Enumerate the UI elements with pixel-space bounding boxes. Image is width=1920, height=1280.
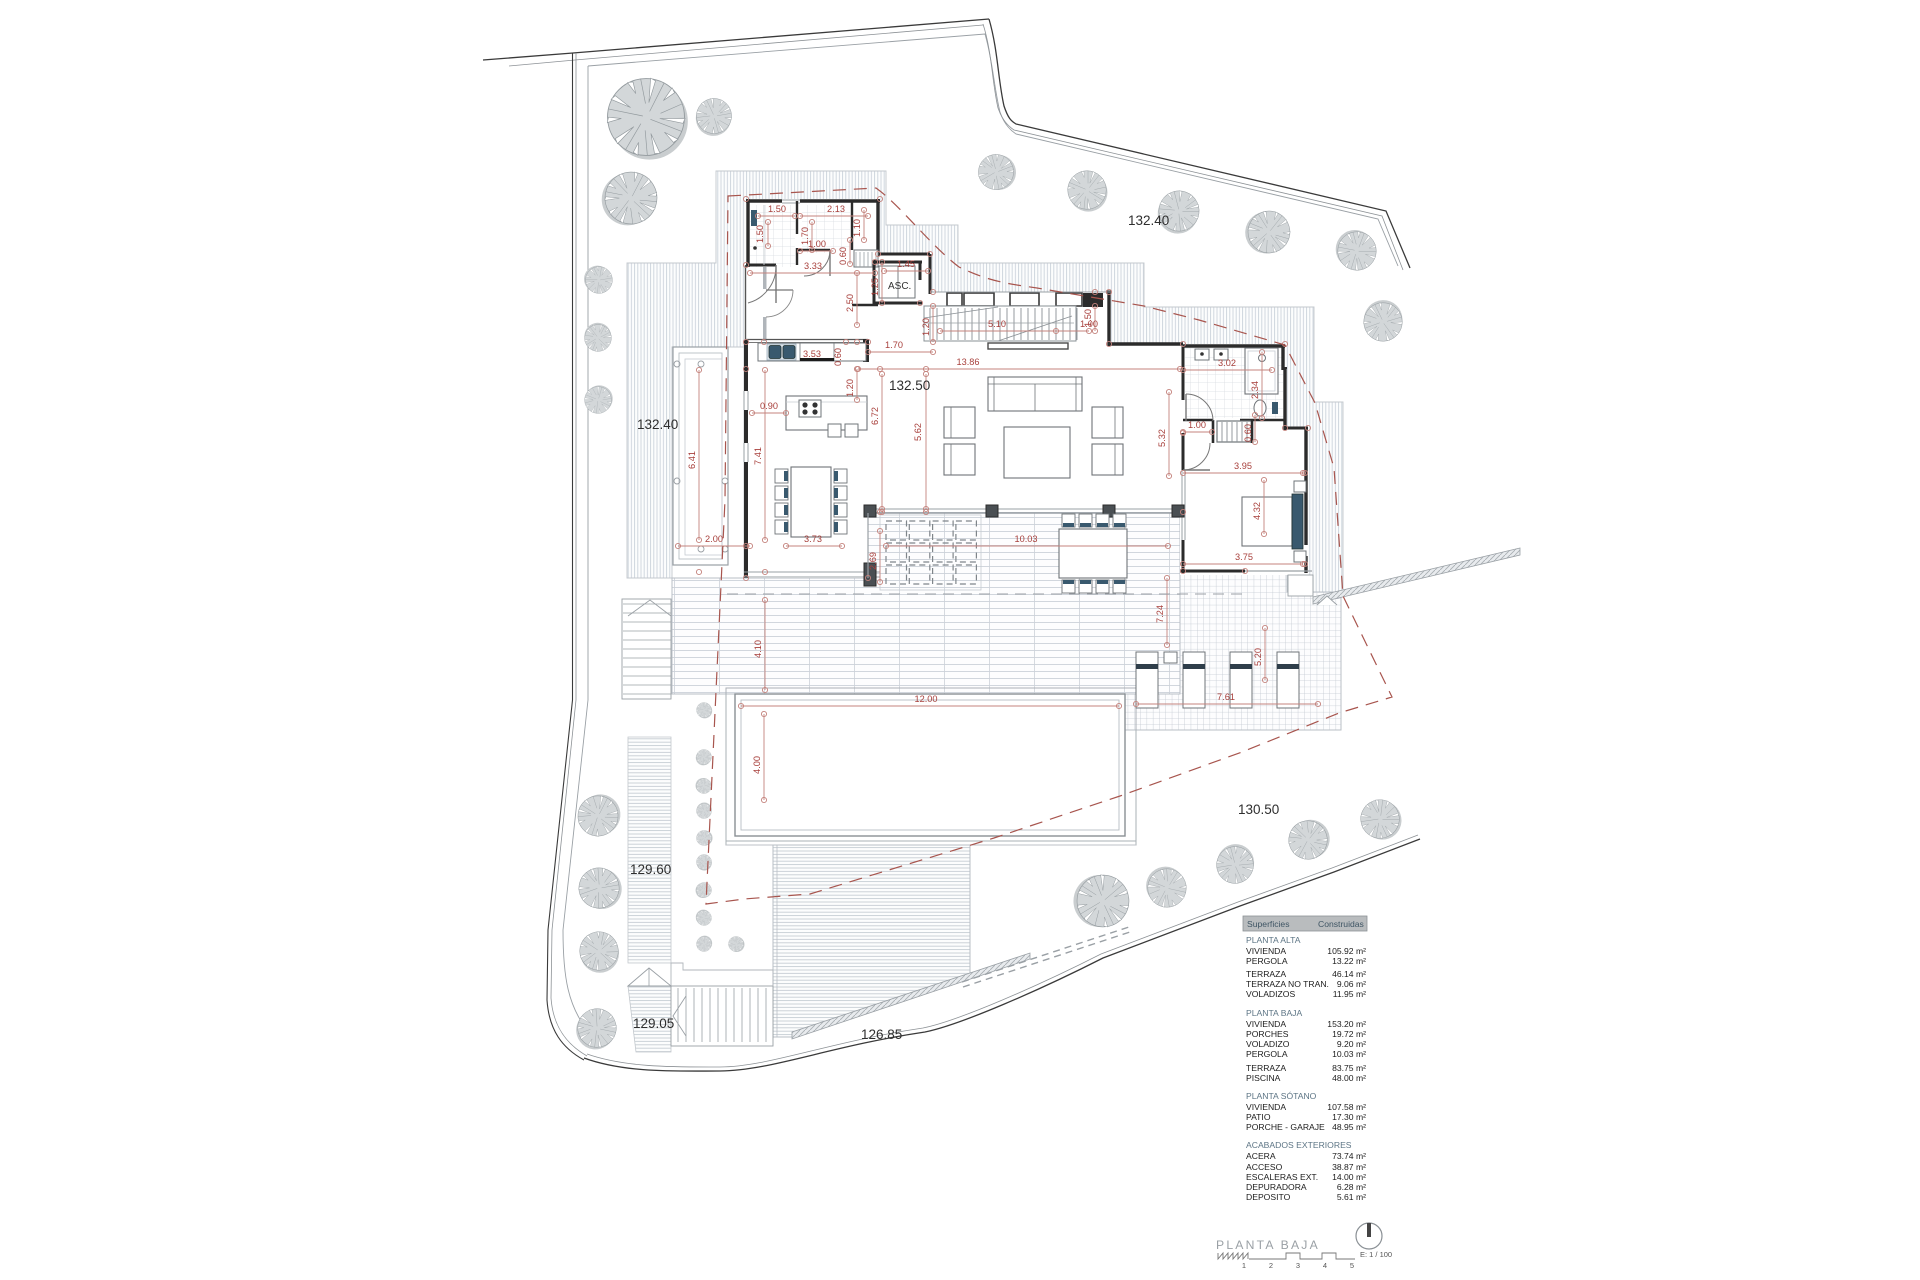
- svg-text:PERGOLA: PERGOLA: [1246, 956, 1288, 966]
- svg-text:1.25: 1.25: [870, 278, 880, 296]
- svg-text:0.60: 0.60: [838, 247, 848, 265]
- svg-text:ACCESO: ACCESO: [1246, 1162, 1283, 1172]
- svg-text:PATIO: PATIO: [1246, 1112, 1271, 1122]
- svg-text:132.50: 132.50: [889, 378, 930, 393]
- svg-text:3: 3: [1296, 1261, 1300, 1270]
- svg-text:1.50: 1.50: [768, 204, 786, 214]
- svg-text:132.40: 132.40: [1128, 213, 1169, 228]
- svg-text:2.13: 2.13: [827, 204, 845, 214]
- svg-text:3.75: 3.75: [1235, 552, 1253, 562]
- svg-text:2.50: 2.50: [845, 294, 855, 312]
- svg-text:PORCHE - GARAJE: PORCHE - GARAJE: [1246, 1122, 1325, 1132]
- svg-text:PERGOLA: PERGOLA: [1246, 1049, 1288, 1059]
- svg-text:19.72 m²: 19.72 m²: [1332, 1029, 1366, 1039]
- svg-text:4.00: 4.00: [752, 756, 762, 774]
- svg-text:7.41: 7.41: [753, 447, 763, 465]
- svg-text:11.95 m²: 11.95 m²: [1333, 989, 1366, 999]
- svg-text:129.05: 129.05: [633, 1016, 674, 1031]
- svg-text:6.28 m²: 6.28 m²: [1337, 1182, 1366, 1192]
- svg-text:TERRAZA: TERRAZA: [1246, 969, 1286, 979]
- svg-text:2.34: 2.34: [1250, 381, 1260, 399]
- svg-text:1.20: 1.20: [921, 318, 931, 336]
- svg-text:TERRAZA: TERRAZA: [1246, 1063, 1286, 1073]
- svg-text:48.00 m²: 48.00 m²: [1332, 1073, 1366, 1083]
- svg-text:VIVIENDA: VIVIENDA: [1246, 1102, 1286, 1112]
- svg-text:13.22 m²: 13.22 m²: [1332, 956, 1366, 966]
- svg-text:0.90: 0.90: [760, 401, 778, 411]
- svg-text:5.62: 5.62: [913, 423, 923, 441]
- svg-text:PLANTA BAJA: PLANTA BAJA: [1216, 1238, 1320, 1252]
- svg-text:DEPURADORA: DEPURADORA: [1246, 1182, 1307, 1192]
- svg-text:E: 1 / 100: E: 1 / 100: [1360, 1250, 1392, 1259]
- svg-text:0.60: 0.60: [1243, 424, 1253, 442]
- svg-text:6.41: 6.41: [687, 451, 697, 469]
- svg-text:2.00: 2.00: [705, 534, 723, 544]
- svg-text:13.86: 13.86: [957, 357, 980, 367]
- svg-text:PLANTA ALTA: PLANTA ALTA: [1246, 935, 1301, 945]
- svg-text:2.69: 2.69: [868, 552, 878, 570]
- svg-text:1.20: 1.20: [845, 379, 855, 397]
- svg-text:1.50: 1.50: [1083, 309, 1093, 327]
- svg-text:ASC.: ASC.: [888, 281, 911, 292]
- svg-text:0.60: 0.60: [833, 348, 843, 366]
- svg-text:3.33: 3.33: [804, 261, 822, 271]
- svg-text:3.53: 3.53: [803, 349, 821, 359]
- svg-text:4.10: 4.10: [753, 640, 763, 658]
- svg-text:PLANTA SÓTANO: PLANTA SÓTANO: [1246, 1091, 1317, 1101]
- svg-text:ESCALERAS EXT.: ESCALERAS EXT.: [1246, 1172, 1318, 1182]
- svg-text:PLANTA BAJA: PLANTA BAJA: [1246, 1008, 1302, 1018]
- svg-text:TERRAZA NO TRAN.: TERRAZA NO TRAN.: [1246, 979, 1329, 989]
- svg-text:7.24: 7.24: [1155, 605, 1165, 623]
- svg-text:5.20: 5.20: [1253, 648, 1263, 666]
- svg-text:2: 2: [1269, 1261, 1273, 1270]
- svg-text:73.74 m²: 73.74 m²: [1332, 1151, 1366, 1161]
- svg-text:83.75 m²: 83.75 m²: [1332, 1063, 1366, 1073]
- svg-text:1.00: 1.00: [1188, 420, 1206, 430]
- svg-text:17.30 m²: 17.30 m²: [1332, 1112, 1366, 1122]
- svg-text:1: 1: [1242, 1261, 1246, 1270]
- svg-text:VOLADIZOS: VOLADIZOS: [1246, 989, 1295, 999]
- svg-text:105.92 m²: 105.92 m²: [1327, 946, 1366, 956]
- svg-text:1.10: 1.10: [852, 219, 862, 237]
- svg-text:38.87 m²: 38.87 m²: [1332, 1162, 1366, 1172]
- svg-text:9.06 m²: 9.06 m²: [1337, 979, 1366, 989]
- svg-text:3.02: 3.02: [1218, 358, 1236, 368]
- svg-text:10.03: 10.03: [1015, 534, 1038, 544]
- svg-text:Construidas: Construidas: [1318, 919, 1364, 929]
- svg-text:14.00 m²: 14.00 m²: [1332, 1172, 1366, 1182]
- svg-text:48.95 m²: 48.95 m²: [1332, 1122, 1366, 1132]
- svg-text:ACABADOS EXTERIORES: ACABADOS EXTERIORES: [1246, 1140, 1352, 1150]
- svg-text:107.58 m²: 107.58 m²: [1327, 1102, 1366, 1112]
- svg-text:1.70: 1.70: [885, 340, 903, 350]
- svg-text:130.50: 130.50: [1238, 802, 1279, 817]
- svg-text:7.61: 7.61: [1217, 692, 1235, 702]
- svg-text:1.45: 1.45: [897, 259, 915, 269]
- svg-text:VIVIENDA: VIVIENDA: [1246, 946, 1286, 956]
- svg-text:5.32: 5.32: [1157, 429, 1167, 447]
- svg-text:4: 4: [1323, 1261, 1327, 1270]
- svg-text:12.00: 12.00: [915, 694, 938, 704]
- svg-text:5.61 m²: 5.61 m²: [1337, 1192, 1366, 1202]
- svg-text:6.72: 6.72: [870, 407, 880, 425]
- svg-text:46.14 m²: 46.14 m²: [1332, 969, 1366, 979]
- svg-text:1.50: 1.50: [755, 225, 765, 243]
- svg-text:ACERA: ACERA: [1246, 1151, 1276, 1161]
- svg-text:3.95: 3.95: [1234, 461, 1252, 471]
- svg-text:129.60: 129.60: [630, 862, 671, 877]
- svg-text:3.73: 3.73: [804, 534, 822, 544]
- svg-text:PORCHES: PORCHES: [1246, 1029, 1289, 1039]
- svg-text:132.40: 132.40: [637, 417, 678, 432]
- svg-text:4.32: 4.32: [1252, 502, 1262, 520]
- svg-text:VOLADIZO: VOLADIZO: [1246, 1039, 1290, 1049]
- svg-text:1.00: 1.00: [808, 239, 826, 249]
- svg-text:153.20 m²: 153.20 m²: [1327, 1019, 1366, 1029]
- svg-text:Superficies: Superficies: [1247, 919, 1290, 929]
- svg-text:9.20 m²: 9.20 m²: [1337, 1039, 1366, 1049]
- svg-text:PISCINA: PISCINA: [1246, 1073, 1281, 1083]
- svg-text:DEPOSITO: DEPOSITO: [1246, 1192, 1291, 1202]
- svg-text:126.85: 126.85: [861, 1027, 902, 1042]
- svg-text:VIVIENDA: VIVIENDA: [1246, 1019, 1286, 1029]
- svg-text:5: 5: [1350, 1261, 1354, 1270]
- svg-text:10.03 m²: 10.03 m²: [1332, 1049, 1366, 1059]
- svg-text:5.10: 5.10: [988, 319, 1006, 329]
